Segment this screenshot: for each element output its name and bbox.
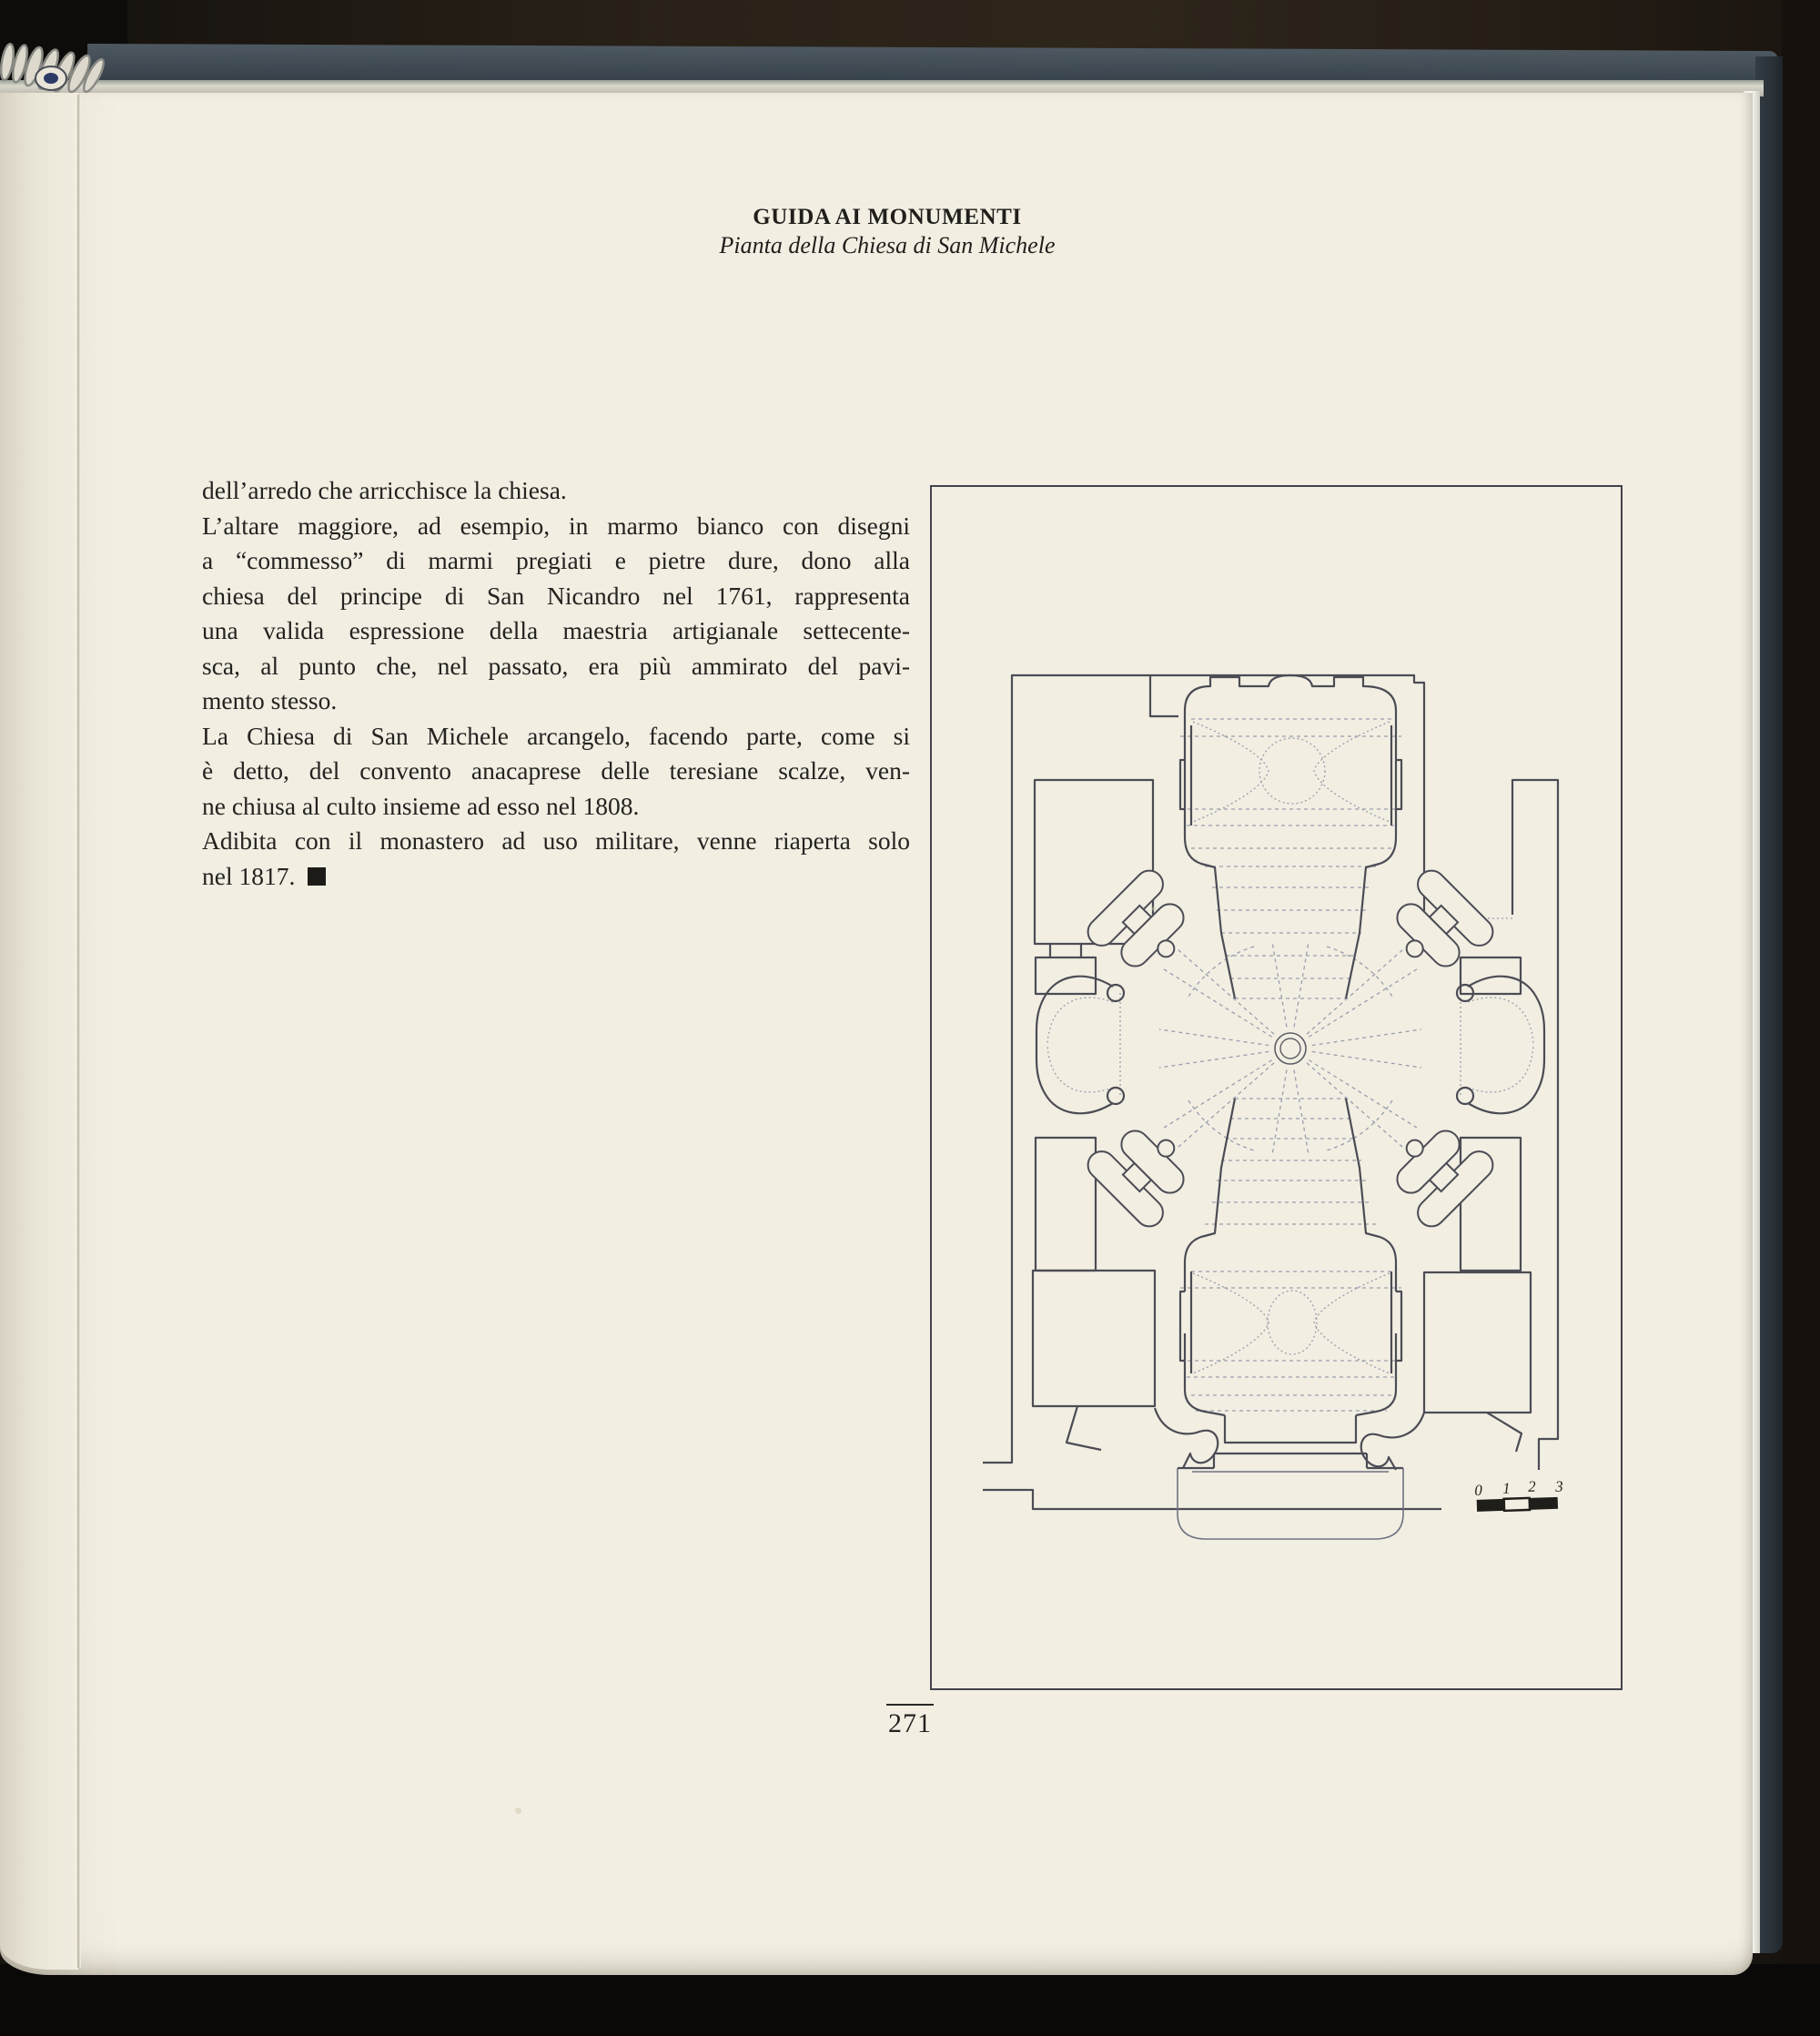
body-text: dell’arredo che arricchisce la chiesa.L’…	[202, 473, 910, 894]
scale-label-0: 0	[1474, 1482, 1483, 1499]
text-line-content: a “commesso” di marmi pregiati e pietre …	[202, 546, 910, 574]
binding-stitches-icon	[0, 22, 120, 96]
page-title: GUIDA AI MONUMENTI	[82, 204, 1693, 231]
text-line-content: La Chiesa di San Michele arcangelo, face…	[202, 722, 910, 750]
scale-label-1: 1	[1502, 1480, 1511, 1497]
text-line: Adibita con il monastero ad uso militare…	[202, 824, 910, 859]
page-number-value: 271	[886, 1704, 934, 1739]
text-line: ne chiusa al culto insieme ad esso nel 1…	[202, 789, 910, 825]
paper-speck	[1152, 907, 1157, 911]
text-line: La Chiesa di San Michele arcangelo, face…	[202, 719, 910, 755]
floor-plan-svg: 0 1 2 3	[932, 487, 1621, 1688]
text-line: è detto, del convento anacaprese delle t…	[202, 754, 910, 789]
page-number: 271	[846, 1704, 974, 1739]
text-line: nel 1817.	[202, 859, 910, 895]
book-photo-scene: GUIDA AI MONUMENTI Pianta della Chiesa d…	[0, 0, 1820, 2036]
end-of-article-square	[308, 867, 326, 886]
page-header: GUIDA AI MONUMENTI Pianta della Chiesa d…	[82, 204, 1693, 260]
text-line-content: L’altare maggiore, ad esempio, in marmo …	[202, 512, 910, 540]
text-line-content: una valida espressione della maestria ar…	[202, 616, 910, 644]
plan-dashed-lines	[1047, 719, 1558, 1439]
page-gutter-strip	[0, 93, 78, 1970]
page-subtitle: Pianta della Chiesa di San Michele	[82, 231, 1693, 260]
page-crease	[77, 95, 81, 1968]
text-line-content: sca, al punto che, nel passato, era più …	[202, 652, 910, 680]
text-line-content: è detto, del convento anacaprese delle t…	[202, 756, 910, 785]
text-line: L’altare maggiore, ad esempio, in marmo …	[202, 509, 910, 544]
text-line: chiesa del principe di San Nicandro nel …	[202, 579, 910, 614]
text-line-content: ne chiusa al culto insieme ad esso nel 1…	[202, 792, 639, 820]
text-line-content: chiesa del principe di San Nicandro nel …	[202, 582, 910, 610]
background-right	[1782, 0, 1820, 2036]
text-line-content: mento stesso.	[202, 686, 337, 714]
scale-bar: 0 1 2 3	[1474, 1477, 1564, 1512]
scale-label-3: 3	[1554, 1478, 1563, 1495]
text-line: una valida espressione della maestria ar…	[202, 613, 910, 649]
text-line: dell’arredo che arricchisce la chiesa.	[202, 473, 910, 509]
plan-dome-center	[1269, 1028, 1311, 1069]
floor-plan-figure: 0 1 2 3	[930, 485, 1623, 1690]
paper-speck	[515, 1808, 521, 1814]
text-line: mento stesso.	[202, 684, 910, 719]
text-line: a “commesso” di marmi pregiati e pietre …	[202, 543, 910, 579]
text-line-content: dell’arredo che arricchisce la chiesa.	[202, 476, 567, 504]
plan-entrance-porch	[1178, 1468, 1403, 1539]
text-line-content: Adibita con il monastero ad uso militare…	[202, 826, 910, 855]
scale-label-2: 2	[1528, 1478, 1537, 1495]
plan-walls	[983, 675, 1558, 1509]
text-line: sca, al punto che, nel passato, era più …	[202, 649, 910, 684]
text-line-content: nel 1817.	[202, 862, 295, 890]
